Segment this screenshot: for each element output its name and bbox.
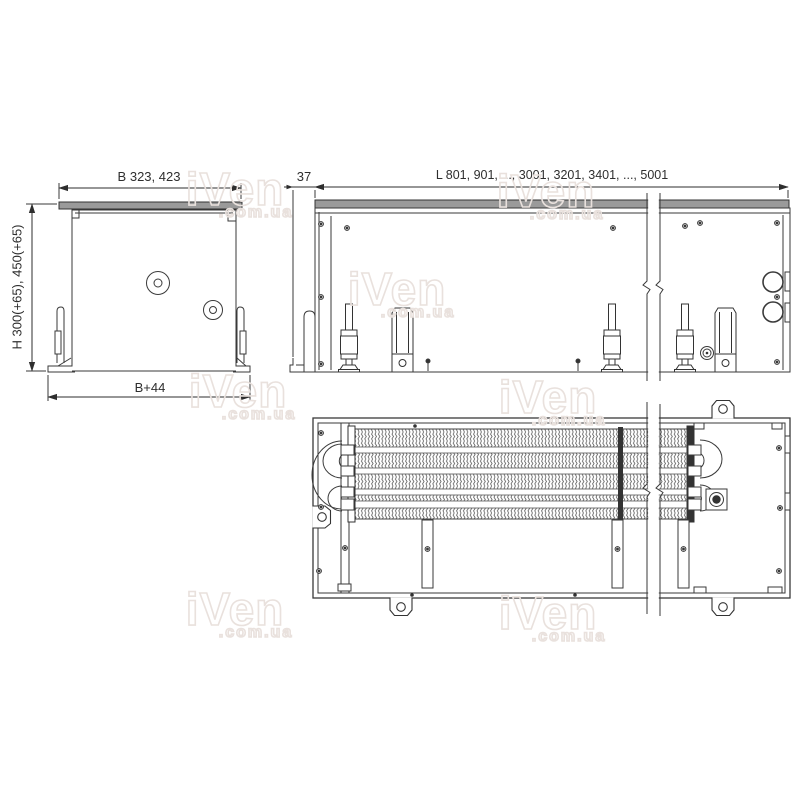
- drain-fitting: [701, 347, 714, 360]
- end-view: [26, 183, 250, 401]
- end-view-lid: [59, 202, 242, 209]
- dim-label-overhang: 37: [297, 170, 311, 183]
- mounting-tab: [712, 401, 734, 419]
- dim-label-length: L 801, 901, ..., 3001, 3201, 3401, ..., …: [436, 169, 668, 182]
- heat-exchanger: [348, 426, 694, 522]
- wall-bracket: [392, 308, 413, 372]
- end-view-width-dimension: [59, 183, 241, 199]
- dim-label-width: B 323, 423: [118, 170, 181, 183]
- mounting-tab: [712, 598, 734, 616]
- drawing-canvas: iVen .com.ua iVen .com.ua iVen .com.ua i…: [0, 0, 800, 800]
- dim-label-base: B+44: [135, 381, 166, 394]
- wall-bracket: [715, 308, 736, 372]
- side-view-left-bracket: [290, 311, 315, 372]
- end-view-knockout-large: [147, 272, 170, 295]
- coil-support: [618, 427, 623, 521]
- end-view-left-rail: [55, 307, 64, 363]
- plan-view: [312, 401, 790, 616]
- side-view: [284, 185, 790, 372]
- end-view-knockout-small: [204, 301, 223, 320]
- side-view-lid: [315, 200, 789, 208]
- mounting-tab: [390, 598, 412, 616]
- end-view-height-dimension: [26, 204, 57, 371]
- side-view-length-dimension: [315, 187, 788, 198]
- technical-drawing: [0, 0, 800, 800]
- dim-label-height: H 300(+65), 450(+65): [11, 224, 24, 349]
- end-view-right-rail: [237, 307, 246, 363]
- valve-fitting: [706, 489, 727, 510]
